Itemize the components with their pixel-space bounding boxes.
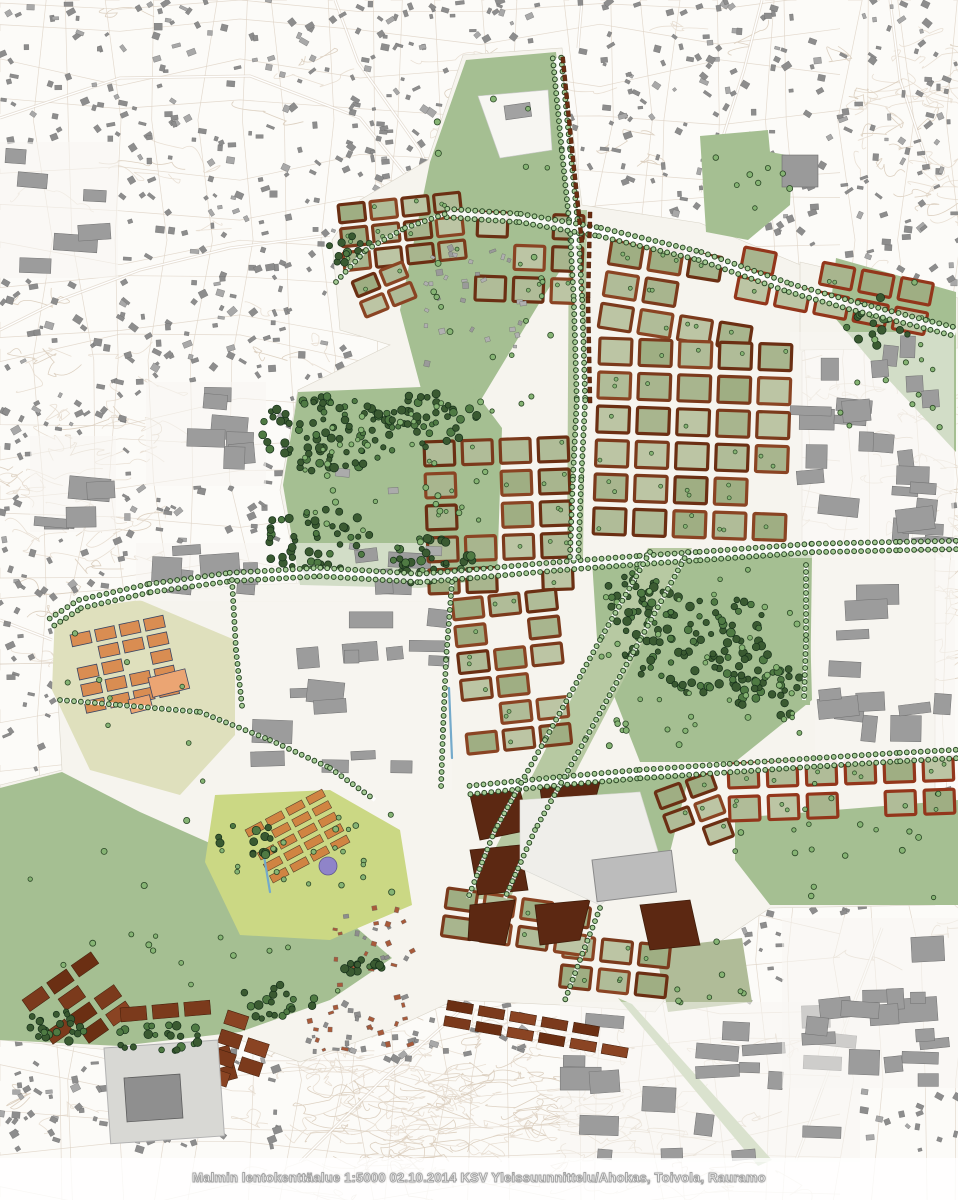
map-image: Malmin lentokenttäalue 1:5000 02.10.2014… (0, 0, 958, 1200)
plan-map-svg (0, 0, 958, 1200)
map-caption: Malmin lentokenttäalue 1:5000 02.10.2014… (0, 1170, 958, 1185)
